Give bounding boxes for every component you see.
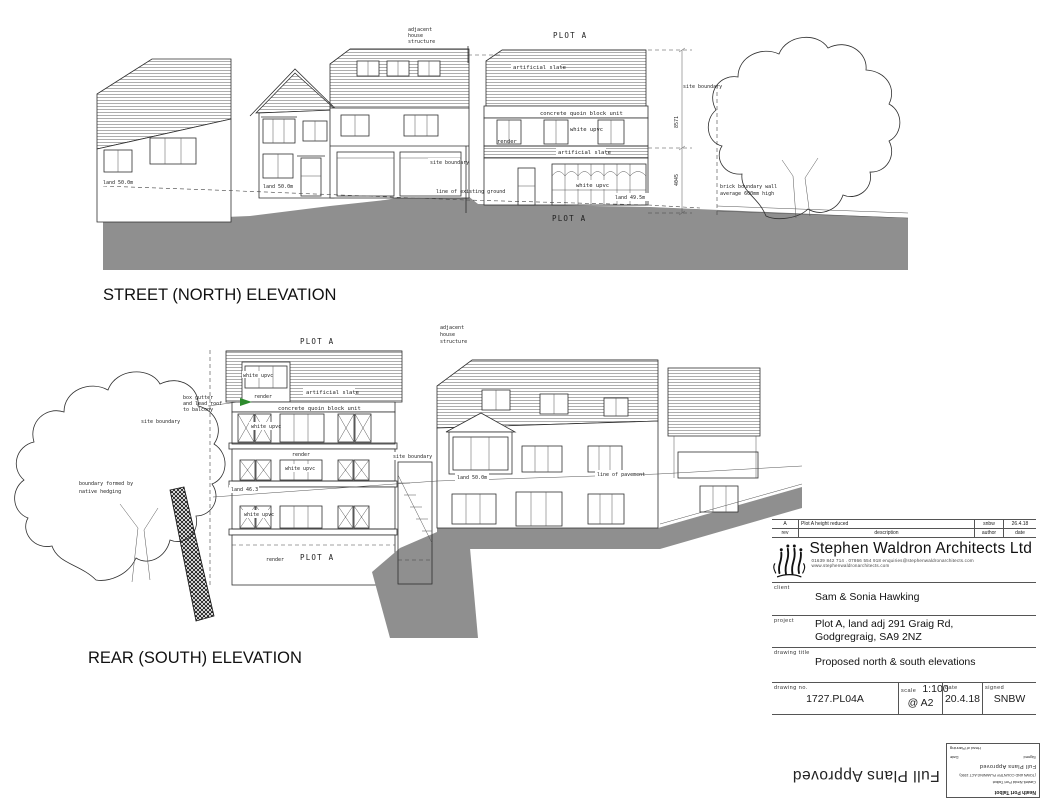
- upvc-label-first-floor: white upvc: [570, 127, 603, 133]
- rear-plot-title: PLOT A: [300, 337, 334, 346]
- revision-header-rev: rev: [772, 529, 798, 537]
- street-elevation-title: STREET (NORTH) ELEVATION: [103, 286, 336, 304]
- rear-adjacent-note-1: adjacent: [440, 325, 464, 331]
- street-plot-title: PLOT A: [553, 31, 587, 40]
- stamp-officer: Head of Planning: [950, 746, 1036, 751]
- drawing-no-label: drawing no.: [772, 683, 898, 691]
- stamp-act-text: (TOWN AND COUNTRY PLANNING ACT 1990): [950, 773, 1036, 777]
- drawing-title-value: Proposed north & south elevations: [815, 656, 1036, 669]
- client-value: Sam & Sonia Hawking: [815, 591, 1036, 604]
- street-house-left: [97, 59, 231, 222]
- stamp-signed-label: Signed: [1024, 755, 1036, 760]
- rear-plot-ground-label: PLOT A: [300, 553, 334, 562]
- upvc-label-garage: white upvc: [576, 183, 609, 189]
- rear-adjacent-note-3: structure: [440, 339, 467, 345]
- street-plot-ground-label: PLOT A: [552, 214, 586, 223]
- mid-upvc-label: white upvc: [285, 466, 315, 472]
- hedge-note-2: native hedging: [79, 489, 121, 495]
- signed-label: signed: [983, 683, 1036, 691]
- stamp-authority-cy: Castell-Nedd Port Talbot: [950, 780, 1036, 785]
- firm-contact: 01639 842 714 . 07866 554 918 enquiries@…: [812, 558, 1037, 568]
- drawing-title-label: drawing title: [772, 648, 1036, 656]
- scale-label: scale: [899, 686, 916, 694]
- firm-name: Stephen Waldron Architects Ltd: [810, 540, 1037, 558]
- ground-line-note: line of existing ground: [436, 189, 505, 195]
- revision-header-author: author: [974, 529, 1003, 537]
- street-plot-a-house: [466, 46, 648, 213]
- level-plot-label: land 49.5m: [615, 195, 645, 201]
- gutter-note-3: to balcony: [183, 407, 213, 413]
- scale-sheet: @ A2: [899, 697, 942, 709]
- level-mid-rear-label: land 46.3: [231, 487, 258, 493]
- mid-render-label: render: [292, 452, 310, 458]
- hedge-note-1: boundary formed by: [79, 481, 133, 487]
- rear-adjacent-note-2: house: [440, 332, 455, 338]
- base-render-label: render: [266, 557, 284, 563]
- rear-elevation-title: REAR (SOUTH) ELEVATION: [88, 649, 302, 667]
- rear-hedge-band: [170, 487, 214, 621]
- date-value: 20.4.18: [943, 693, 982, 705]
- revision-author: snbw: [974, 520, 1003, 528]
- stamp-date-label: Date: [950, 755, 958, 760]
- rear-site-boundary-right-label: site boundary: [393, 454, 432, 460]
- render-label: render: [497, 139, 518, 145]
- title-block: A Plot A height reduced snbw 26.4.18 rev…: [772, 519, 1036, 712]
- upper-upvc-label: white upvc: [251, 424, 281, 430]
- rear-elevation-drawing: PLOT A adjacent house structure white up…: [15, 325, 802, 667]
- drawing-no-value: 1727.PL04A: [772, 693, 898, 705]
- band-material-label: artificial slate: [558, 150, 611, 156]
- quoin-label: concrete quoin block unit: [540, 111, 623, 117]
- project-section: project Plot A, land adj 291 Graig Rd, G…: [772, 615, 1036, 647]
- revision-description: Plot A height reduced: [798, 520, 974, 528]
- dim-lower: 4045: [674, 174, 680, 186]
- architects-logo-icon: [772, 540, 806, 580]
- attic-upvc-label: white upvc: [243, 373, 273, 379]
- client-label: client: [772, 583, 1036, 591]
- level-right-label: land 50.0m: [457, 475, 487, 481]
- pavement-note-label: line of pavement: [597, 472, 645, 478]
- stamp-status-text: Full Plans Approved: [950, 763, 1036, 769]
- full-plans-approved-stamp-text: Full Plans Approved: [791, 761, 941, 789]
- street-dimension-lines: [648, 48, 692, 215]
- boundary-wall-note-2: average 600mm high: [720, 191, 774, 197]
- revision-header-date: date: [1003, 529, 1036, 537]
- rear-site-boundary-left-label: site boundary: [141, 419, 180, 425]
- project-line-1: Plot A, land adj 291 Graig Rd,: [815, 618, 1036, 631]
- adjacent-note-3: structure: [408, 39, 435, 45]
- stamp-authority-en: Neath Port Talbot: [950, 789, 1036, 795]
- drawing-title-section: drawing title Proposed north & south ele…: [772, 647, 1036, 682]
- signed-value: SNBW: [983, 693, 1036, 705]
- revision-date: 26.4.18: [1003, 520, 1036, 528]
- roof-material-label: artificial slate: [513, 65, 566, 71]
- revision-table: A Plot A height reduced snbw 26.4.18 rev…: [772, 519, 1036, 538]
- rear-quoin-label: concrete quoin block unit: [278, 406, 361, 412]
- rear-adjacent-house: [437, 360, 658, 528]
- street-house-gable: [250, 69, 341, 198]
- level-mid-label: land 50.0m: [263, 184, 293, 190]
- dim-upper: 8571: [674, 116, 680, 128]
- site-boundary-left-label: site boundary: [430, 160, 469, 166]
- lower-upvc-label: white upvc: [244, 512, 274, 518]
- revision-header-description: description: [798, 529, 974, 537]
- rear-roof-material-label: artificial slate: [306, 390, 359, 396]
- drawing-sheet: .s{stroke:#2f2f2f;stroke-width:.8;fill:n…: [0, 0, 1044, 800]
- street-elevation-drawing: PLOT A adjacent house structure artifici…: [97, 27, 908, 304]
- site-boundary-right-label: site boundary: [683, 84, 722, 90]
- revision-letter: A: [772, 520, 798, 528]
- project-line-2: Godgregraig, SA9 2NZ: [815, 631, 1036, 644]
- drawing-number-row: drawing no. 1727.PL04A scale 1:100 @ A2 …: [772, 682, 1036, 715]
- rear-far-right-structure: [668, 368, 760, 512]
- level-left-label: land 50.0m: [103, 180, 133, 186]
- date-label: date: [943, 683, 982, 691]
- street-house-dormer: [330, 49, 469, 198]
- boundary-wall-note-1: brick boundary wall: [720, 184, 777, 190]
- client-section: client Sam & Sonia Hawking: [772, 582, 1036, 615]
- approval-stamp-box: Neath Port Talbot Castell-Nedd Port Talb…: [946, 743, 1040, 798]
- attic-render-label: render: [254, 394, 272, 400]
